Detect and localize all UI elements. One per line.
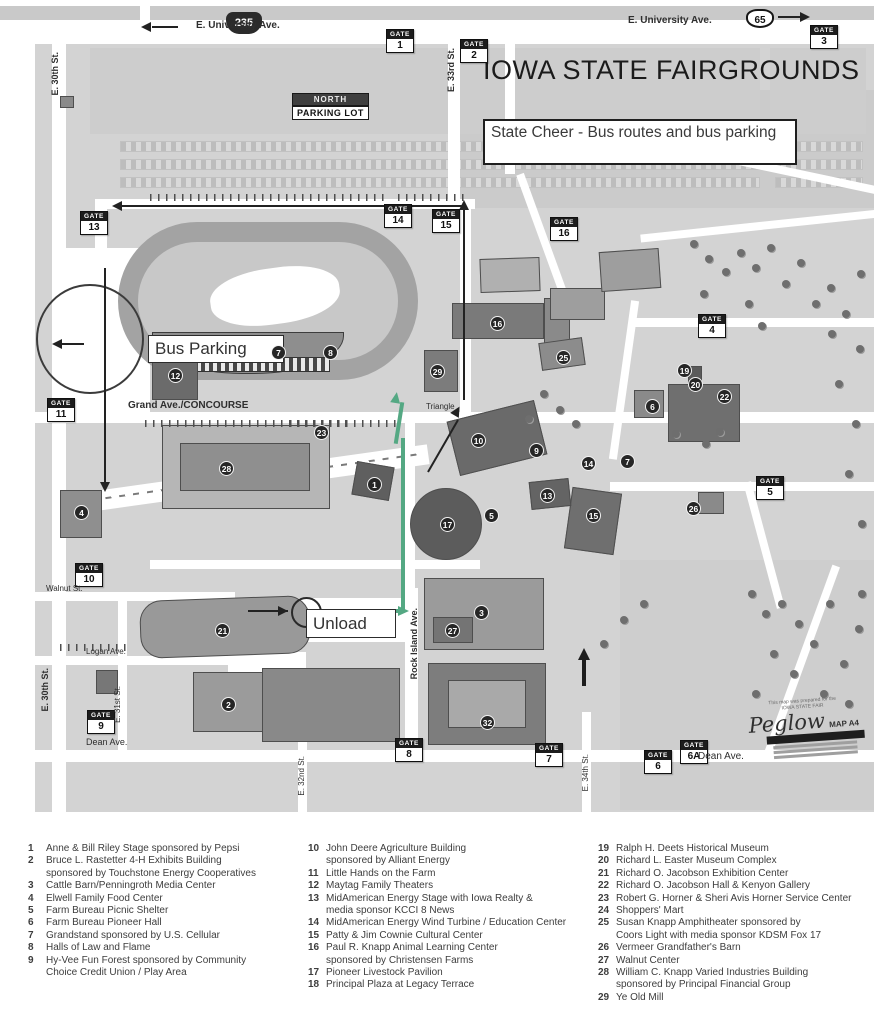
gate-word: GATE [387,30,413,39]
bus-route-arrow-left-icon [112,201,122,211]
tree-icon [572,420,580,428]
legend-item-text: Richard O. Jacobson Hall & Kenyon Galler… [616,880,870,892]
bus-route-line [62,343,84,345]
legend-item-number: 5 [28,905,46,917]
legend-item-9: 9Hy-Vee Fun Forest sponsored by Communit… [28,955,300,980]
arrow-line [778,16,802,18]
bus-route-line [104,268,106,482]
gate-word: GATE [811,26,837,35]
legend-item-number: 13 [308,893,326,918]
bus-route-arrow-right-icon [278,606,288,616]
street-label: E. University Ave. [628,15,712,26]
tree-icon [556,406,564,414]
gate-number: 13 [81,221,107,234]
street-label: Walnut St. [46,584,83,593]
gate-word: GATE [757,477,783,486]
gate-sign-9: GATE9 [87,710,115,734]
gate-sign-3: GATE3 [810,25,838,49]
arrow-line [152,26,178,28]
unload-label: Unload [306,609,396,638]
north-parking-lot-line2: PARKING LOT [292,106,369,120]
legend-item-number: 4 [28,893,46,905]
tree-icon [737,249,745,257]
tree-icon [600,640,608,648]
legend-item-number: 26 [598,942,616,954]
street-label: E. 30th St. [40,668,50,712]
tree-icon [845,470,853,478]
gate-sign-7: GATE7 [535,743,563,767]
gate-sign-15: GATE15 [432,209,460,233]
north-parking-lot-label: NORTH PARKING LOT [292,93,369,120]
gate-word: GATE [681,741,707,750]
legend-item-text: Richard O. Jacobson Exhibition Center [616,868,870,880]
street-label: E. 31st St. [113,686,122,723]
building-marker-32: 32 [480,715,495,730]
bus-route-line [122,205,464,207]
legend-item-number: 6 [28,917,46,929]
building-marker-25: 25 [556,350,571,365]
bus-route-arrow-down-icon [100,482,110,492]
legend-item-number: 22 [598,880,616,892]
tree-icon [752,264,760,272]
building-marker-13: 13 [540,488,555,503]
tree-icon [758,322,766,330]
tree-icon [525,415,533,423]
street-label: E. University Ave. [196,20,280,31]
legend-item-5: 5Farm Bureau Picnic Shelter [28,905,300,917]
building-marker-9: 9 [529,443,544,458]
unload-route-line [401,438,405,612]
gate-number: 16 [551,227,577,240]
tree-icon [835,380,843,388]
legend-item-number: 16 [308,942,326,967]
tree-icon [540,390,548,398]
tree-icon [858,590,866,598]
gate-word: GATE [88,711,114,720]
tree-icon [748,590,756,598]
building-marker-16: 16 [490,316,505,331]
legend-item-text: Hy-Vee Fun Forest sponsored by Community… [46,955,300,980]
building-marker-26: 26 [686,501,701,516]
flag-row [150,194,390,201]
tree-icon [852,420,860,428]
legend-item-21: 21Richard O. Jacobson Exhibition Center [598,868,870,880]
gate-word: GATE [385,205,411,214]
gate-word: GATE [81,212,107,221]
legend-item-text: Grandstand sponsored by U.S. Cellular [46,930,300,942]
legend-item-text: Shoppers' Mart [616,905,870,917]
building [262,668,400,742]
legend-item-number: 18 [308,979,326,991]
gate-word: GATE [645,751,671,760]
gate-number: 15 [433,219,459,232]
building-marker-8: 8 [323,345,338,360]
bus-route-arrow-left-icon [52,339,62,349]
legend-item-number: 2 [28,855,46,880]
building [180,443,310,491]
gate-number: 3 [811,35,837,48]
legend-item-17: 17Pioneer Livestock Pavilion [308,967,592,979]
legend-item-text: Farm Bureau Pioneer Hall [46,917,300,929]
legend-item-20: 20Richard L. Easter Museum Complex [598,855,870,867]
gate-word: GATE [551,218,577,227]
legend-item-29: 29Ye Old Mill [598,992,870,1004]
tree-icon [752,690,760,698]
legend-item-number: 11 [308,868,326,880]
legend-item-text: Vermeer Grandfather's Barn [616,942,870,954]
tree-icon [745,300,753,308]
building-marker-20: 20 [688,377,703,392]
building-marker-17: 17 [440,517,455,532]
legend-item-text: Principal Plaza at Legacy Terrace [326,979,592,991]
bus-route-line [463,210,465,400]
gate-number: 2 [461,49,487,62]
legend-column-2: 10John Deere Agriculture Buildingsponsor… [308,843,592,992]
legend-item-12: 12Maytag Family Theaters [308,880,592,892]
legend-item-16: 16Paul R. Knapp Animal Learning Centersp… [308,942,592,967]
legend-item-number: 20 [598,855,616,867]
tree-icon [782,280,790,288]
tree-icon [778,600,786,608]
gate-sign-14: GATE14 [384,204,412,228]
legend-item-2: 2Bruce L. Rastetter 4-H Exhibits Buildin… [28,855,300,880]
legend-item-text: Cattle Barn/Penningroth Media Center [46,880,300,892]
legend-item-text: Little Hands on the Farm [326,868,592,880]
legend-item-14: 14MidAmerican Energy Wind Turbine / Educ… [308,917,592,929]
legend-item-number: 17 [308,967,326,979]
gate-number: 4 [699,324,725,337]
tree-icon [810,640,818,648]
parking-stripes [120,177,760,188]
building-marker-15: 15 [586,508,601,523]
gate-sign-8: GATE8 [395,738,423,762]
gate-sign-13: GATE13 [80,211,108,235]
legend-item-number: 9 [28,955,46,980]
building-marker-10: 10 [471,433,486,448]
street-label: E. 34th St. [581,754,590,791]
building-marker-23: 23 [314,425,329,440]
gate-word: GATE [396,739,422,748]
tree-icon [700,290,708,298]
gate-word: GATE [699,315,725,324]
monument-icon [578,648,590,686]
fairgrounds-bus-map-page: { "map": { "title": "IOWA STATE FAIRGROU… [0,0,874,1024]
gate-number: 11 [48,408,74,421]
tree-icon [790,670,798,678]
legend-item-13: 13MidAmerican Energy Stage with Iowa Rea… [308,893,592,918]
legend-item-number: 12 [308,880,326,892]
legend-item-text: Patty & Jim Cownie Cultural Center [326,930,592,942]
tree-icon [705,255,713,263]
legend-item-text: Halls of Law and Flame [46,942,300,954]
map-block [0,6,140,20]
legend-item-number: 10 [308,843,326,868]
legend-item-text: Paul R. Knapp Animal Learning Centerspon… [326,942,592,967]
legend-item-10: 10John Deere Agriculture Buildingsponsor… [308,843,592,868]
legend-item-number: 28 [598,967,616,992]
building-marker-27: 27 [445,623,460,638]
tree-icon [857,270,865,278]
tree-icon [716,428,724,436]
building-marker-5: 5 [484,508,499,523]
tree-icon [620,616,628,624]
building [60,96,74,108]
gate-number: 9 [88,720,114,733]
building-marker-29: 29 [430,364,445,379]
building-marker-3: 3 [474,605,489,620]
gate-sign-4: GATE4 [698,314,726,338]
legend-item-number: 23 [598,893,616,905]
legend-item-number: 3 [28,880,46,892]
legend-item-text: Farm Bureau Picnic Shelter [46,905,300,917]
tree-icon [812,300,820,308]
flag-row [290,420,400,427]
tree-icon [828,330,836,338]
legend-item-number: 8 [28,942,46,954]
tree-icon [640,600,648,608]
legend-item-number: 14 [308,917,326,929]
building-marker-21: 21 [215,623,230,638]
legend-item-15: 15Patty & Jim Cownie Cultural Center [308,930,592,942]
street [35,656,235,665]
tree-icon [840,660,848,668]
legend-item-25: 25Susan Knapp Amphitheater sponsored byC… [598,917,870,942]
gate-number: 5 [757,486,783,499]
legend-item-text: Walnut Center [616,955,870,967]
gate-sign-6: GATE6 [644,750,672,774]
street-label: E. 33rd St. [446,48,456,92]
building [599,248,662,292]
building-marker-22: 22 [717,389,732,404]
legend-item-text: Susan Knapp Amphitheater sponsored byCoo… [616,917,870,942]
tree-icon [827,284,835,292]
building-marker-7: 7 [271,345,286,360]
legend-item-text: Pioneer Livestock Pavilion [326,967,592,979]
legend-column-3: 19Ralph H. Deets Historical Museum20Rich… [598,843,870,1004]
legend-item-18: 18Principal Plaza at Legacy Terrace [308,979,592,991]
street-label: Rock Island Ave. [409,608,419,679]
legend-item-24: 24Shoppers' Mart [598,905,870,917]
gate-word: GATE [76,564,102,573]
bus-parking-label: Bus Parking [148,335,284,363]
legend-item-19: 19Ralph H. Deets Historical Museum [598,843,870,855]
gate-word: GATE [48,399,74,408]
gate-number: 7 [536,753,562,766]
legend-item-28: 28William C. Knapp Varied Industries Bui… [598,967,870,992]
street-label: Triangle [426,402,455,411]
arrow-right-icon [800,12,810,22]
legend-column-1: 1Anne & Bill Riley Stage sponsored by Pe… [28,843,300,979]
legend-item-11: 11Little Hands on the Farm [308,868,592,880]
street-label: Dean Ave. [86,737,127,747]
legend-item-number: 1 [28,843,46,855]
legend-item-number: 19 [598,843,616,855]
legend-item-number: 25 [598,917,616,942]
building-marker-12: 12 [168,368,183,383]
tree-icon [842,310,850,318]
tree-icon [762,610,770,618]
legend-item-6: 6Farm Bureau Pioneer Hall [28,917,300,929]
legend-item-number: 29 [598,992,616,1004]
legend-item-text: MidAmerican Energy Stage with Iowa Realt… [326,893,592,918]
us-65-shield: 65 [746,9,774,28]
legend-item-23: 23Robert G. Horner & Sheri Avis Horner S… [598,893,870,905]
legend-item-4: 4Elwell Family Food Center [28,893,300,905]
building-marker-28: 28 [219,461,234,476]
gate-word: GATE [536,744,562,753]
legend-item-26: 26Vermeer Grandfather's Barn [598,942,870,954]
legend-item-number: 7 [28,930,46,942]
peglow-logo: Peglow [748,711,826,736]
north-parking-lot-line1: NORTH [292,93,369,106]
street-label: Logan Ave. [86,647,126,656]
gate-word: GATE [433,210,459,219]
tree-icon [795,620,803,628]
building-marker-6: 6 [645,399,660,414]
tree-icon [672,430,680,438]
legend-item-3: 3Cattle Barn/Penningroth Media Center [28,880,300,892]
tree-icon [702,440,710,448]
legend-item-text: John Deere Agriculture Buildingsponsored… [326,843,592,868]
street-label: Grand Ave./CONCOURSE [128,400,248,411]
street-label: Dean Ave. [698,751,744,762]
legend-item-1: 1Anne & Bill Riley Stage sponsored by Pe… [28,843,300,855]
legend-item-text: Maytag Family Theaters [326,880,592,892]
map-subtitle-box: State Cheer - Bus routes and bus parking [483,119,797,165]
legend-item-text: Anne & Bill Riley Stage sponsored by Pep… [46,843,300,855]
tree-icon [770,650,778,658]
peglow-credit: This map was prepared for the IOWA STATE… [736,693,872,761]
tree-icon [690,240,698,248]
legend-item-text: Ralph H. Deets Historical Museum [616,843,870,855]
gate-sign-5: GATE5 [756,476,784,500]
legend-item-text: MidAmerican Energy Wind Turbine / Educat… [326,917,592,929]
tree-icon [858,520,866,528]
arrow-left-icon [141,22,151,32]
building-marker-7: 7 [620,454,635,469]
tree-icon [856,345,864,353]
gate-sign-1: GATE1 [386,29,414,53]
tree-icon [722,268,730,276]
legend-item-text: Robert G. Horner & Sheri Avis Horner Ser… [616,893,870,905]
building-marker-14: 14 [581,456,596,471]
legend-item-number: 24 [598,905,616,917]
building [479,257,540,293]
gate-word: GATE [461,40,487,49]
legend-item-number: 15 [308,930,326,942]
building [550,288,605,320]
legend-item-text: Bruce L. Rastetter 4-H Exhibits Building… [46,855,300,880]
gate-number: 14 [385,214,411,227]
map-title: IOWA STATE FAIRGROUNDS [483,55,860,86]
gate-sign-16: GATE16 [550,217,578,241]
map-legend: 1Anne & Bill Riley Stage sponsored by Pe… [0,830,874,1024]
legend-item-text: Richard L. Easter Museum Complex [616,855,870,867]
street [118,592,127,758]
unload-route-arrow-up-icon [390,391,402,403]
bus-route-arrow-up-icon [459,200,469,210]
gate-number: 6 [645,760,671,773]
fairgrounds-map: 235 65 IOWA STATE FAIRGROUNDS State Chee… [0,0,874,830]
legend-item-number: 27 [598,955,616,967]
street-label: E. 32nd St. [297,756,306,796]
street [630,318,874,327]
legend-item-27: 27Walnut Center [598,955,870,967]
tree-icon [826,600,834,608]
legend-item-text: Elwell Family Food Center [46,893,300,905]
map-ref-label: MAP A4 [829,718,859,729]
building-marker-2: 2 [221,697,236,712]
legend-item-8: 8Halls of Law and Flame [28,942,300,954]
legend-item-text: William C. Knapp Varied Industries Build… [616,967,870,992]
legend-item-7: 7Grandstand sponsored by U.S. Cellular [28,930,300,942]
gate-sign-2: GATE2 [460,39,488,63]
building-marker-1: 1 [367,477,382,492]
tree-icon [767,244,775,252]
tree-icon [855,625,863,633]
gate-number: 1 [387,39,413,52]
legend-item-text: Ye Old Mill [616,992,870,1004]
legend-item-22: 22Richard O. Jacobson Hall & Kenyon Gall… [598,880,870,892]
street [610,482,874,491]
gate-sign-11: GATE11 [47,398,75,422]
street [0,26,874,40]
gate-number: 8 [396,748,422,761]
street [150,560,480,569]
tree-icon [797,259,805,267]
street-label: E. 30th St. [50,52,60,96]
building-marker-19: 19 [677,363,692,378]
building [698,492,724,514]
legend-item-number: 21 [598,868,616,880]
building-marker-4: 4 [74,505,89,520]
